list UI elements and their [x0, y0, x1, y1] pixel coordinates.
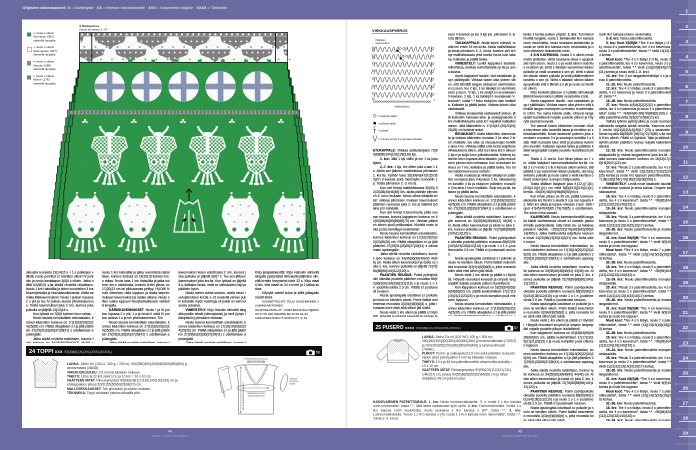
- svg-text:Mallivirkkaus: Mallivirkkaus: [395, 106, 410, 109]
- svg-text:52: 52: [291, 75, 294, 77]
- svg-text:70: 70: [289, 40, 292, 42]
- svg-text:2.: 2.: [371, 87, 373, 90]
- svg-text:72: 72: [289, 36, 292, 38]
- svg-text:80 s:n kuvio: 80 s:n kuvio: [176, 261, 191, 265]
- svg-text:= piilosilmukka: = piilosilmukka: [378, 121, 396, 125]
- svg-text:kavennukset: kavennukset: [376, 42, 390, 45]
- svg-text:74: 74: [289, 33, 292, 35]
- svg-text:VIRKKAUSPIIRROS: VIRKKAUSPIIRROS: [372, 29, 408, 33]
- svg-text:KS/TA: KS/TA: [289, 383, 295, 386]
- svg-text:= V-kuvio eli tee 2 p samaan k: = V-kuvio eli tee 2 p samaan kohtaan: [378, 137, 422, 141]
- svg-text:3.: 3.: [434, 83, 435, 86]
- svg-text:1.: 1.: [434, 99, 435, 102]
- svg-text:= ketjusilmukka: = ketjusilmukka: [378, 114, 397, 118]
- svg-text:5.: 5.: [434, 68, 435, 71]
- svg-text:7.: 7.: [407, 48, 409, 51]
- svg-text:58: 58: [289, 64, 292, 66]
- svg-text:66: 66: [289, 47, 292, 49]
- svg-text:(140)150(164) CM: (140)150(164) CM: [248, 395, 265, 397]
- svg-text:56: 56: [290, 68, 293, 70]
- svg-text:23(25)27(29)33(35): 23(25)27(29)33(35): [247, 361, 265, 363]
- svg-text:52(52)55(56)60(65)68(70) CM: 52(52)55(56)60(65)68(70) CM: [242, 383, 244, 411]
- svg-text:54: 54: [290, 71, 293, 73]
- svg-text:64: 64: [289, 51, 292, 53]
- svg-text:52(52)55(56)60(65): 52(52)55(56)60(65): [219, 380, 226, 398]
- svg-text:50: 50: [291, 79, 294, 81]
- svg-text:6.: 6.: [409, 56, 411, 59]
- svg-text:68: 68: [289, 44, 292, 46]
- svg-text:48: 48: [292, 83, 295, 85]
- svg-text:4.: 4.: [371, 72, 373, 75]
- svg-text:62: 62: [289, 55, 292, 57]
- svg-text:= pylväs: = pylväs: [378, 129, 389, 133]
